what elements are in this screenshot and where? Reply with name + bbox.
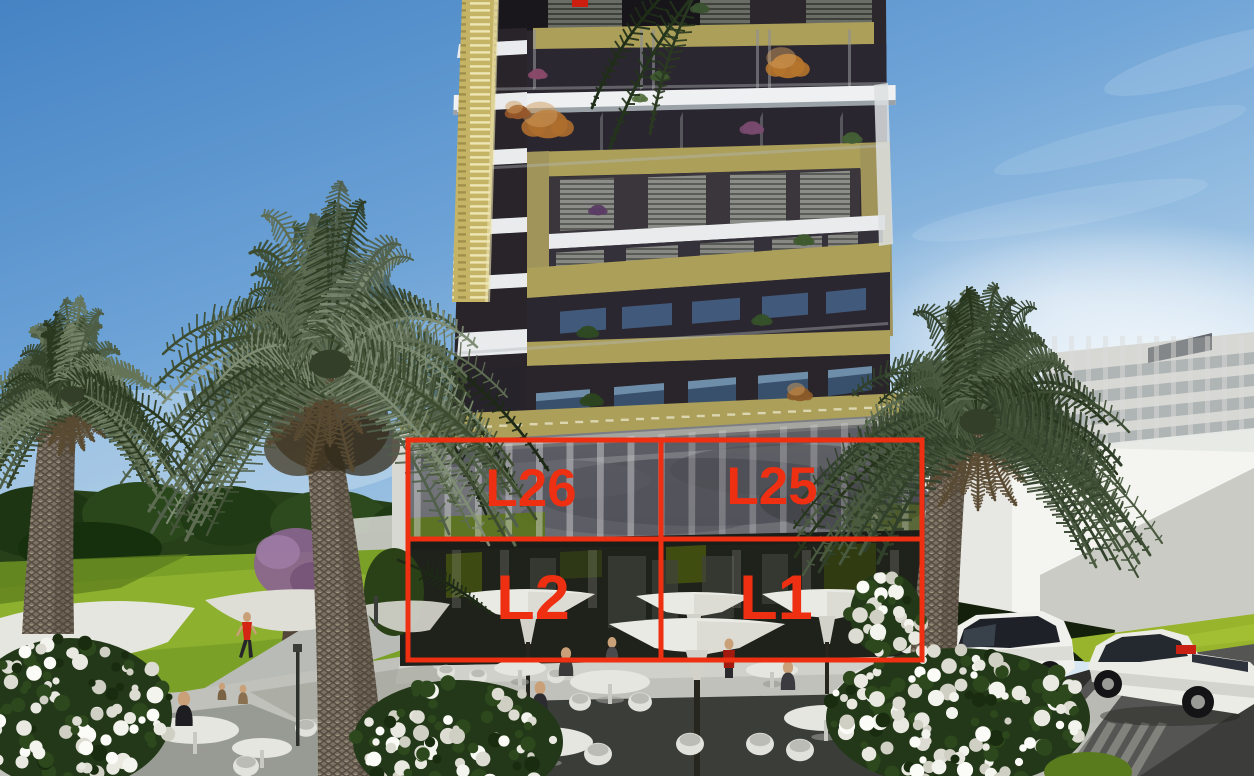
svg-text:L26: L26 <box>485 459 576 518</box>
svg-text:L25: L25 <box>726 457 817 516</box>
svg-text:L2: L2 <box>496 563 570 633</box>
svg-text:L1: L1 <box>739 563 813 633</box>
